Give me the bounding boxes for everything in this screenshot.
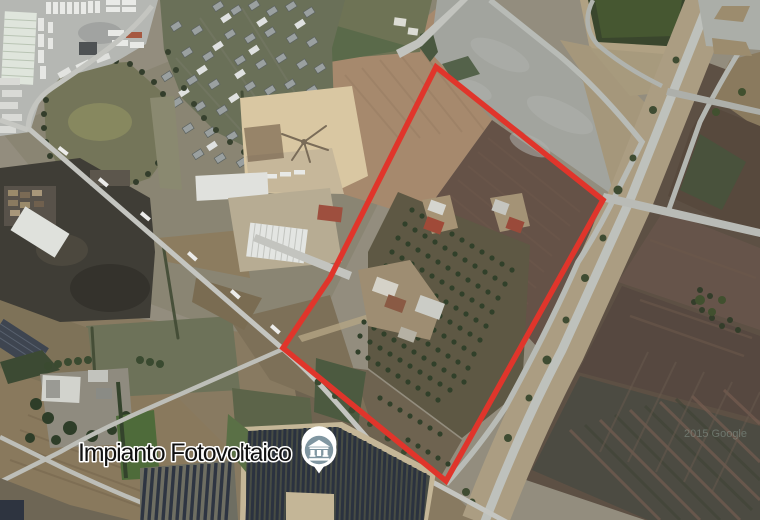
svg-text:2015 Google: 2015 Google: [684, 428, 747, 440]
svg-text:Impianto Fotovoltaico: Impianto Fotovoltaico: [78, 439, 292, 467]
